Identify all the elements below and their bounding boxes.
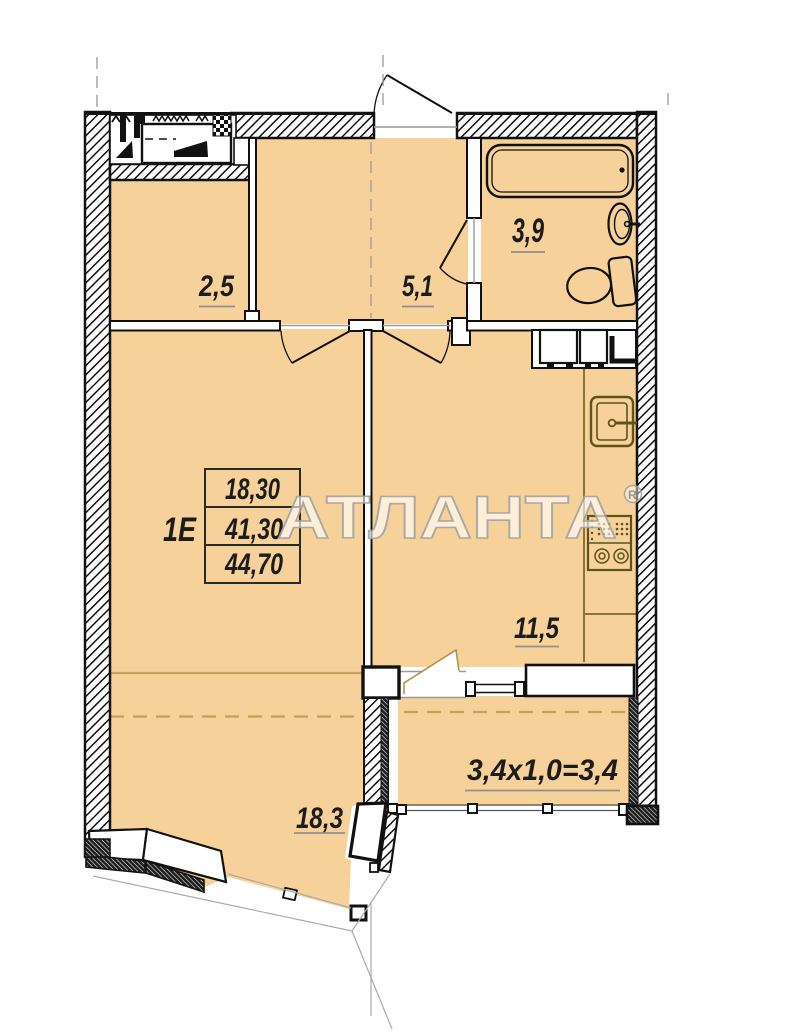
svg-text:АТЛАНТА: АТЛАНТА (277, 484, 617, 551)
svg-text:2,5: 2,5 (198, 270, 235, 303)
svg-text:1Е: 1Е (163, 511, 197, 549)
svg-text:18,30: 18,30 (225, 473, 280, 506)
svg-text:3,4x1,0=3,4: 3,4x1,0=3,4 (467, 754, 618, 787)
svg-text:41,30: 41,30 (224, 513, 283, 546)
svg-text:44,70: 44,70 (224, 548, 283, 581)
svg-text:18,3: 18,3 (296, 802, 343, 835)
svg-text:3,9: 3,9 (512, 212, 544, 250)
svg-text:R: R (628, 488, 637, 502)
svg-text:11,5: 11,5 (514, 612, 560, 645)
svg-text:5,1: 5,1 (402, 270, 433, 303)
